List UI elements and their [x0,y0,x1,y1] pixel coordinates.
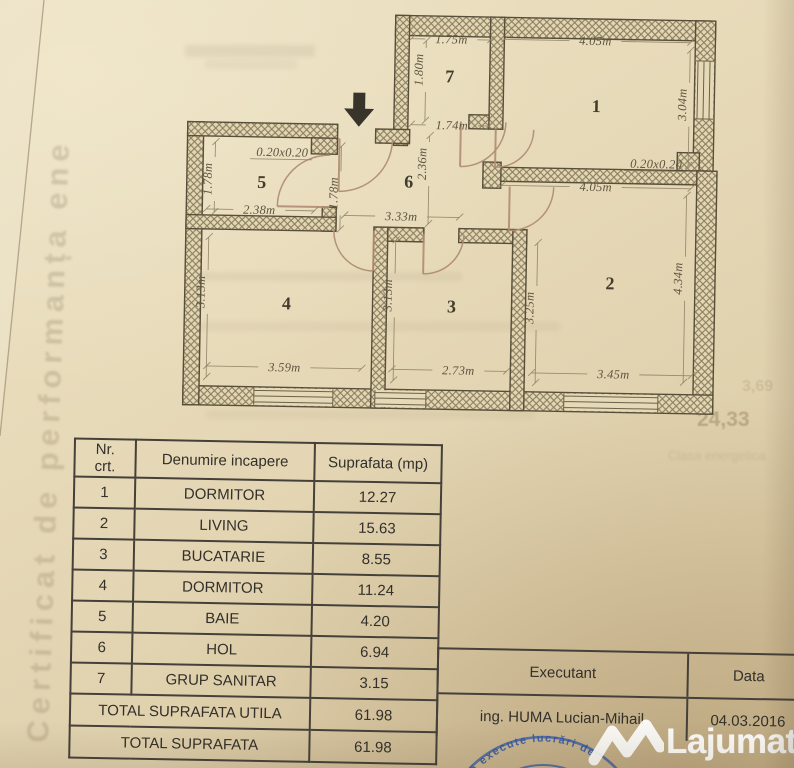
dimension-label: 0.20x0.20 [630,157,683,172]
room-number: 5 [257,172,266,192]
room-number: 3 [447,296,456,316]
dimension-label: 0.20x0.20 [256,145,309,160]
cell-area: 15.63 [313,512,441,545]
dimension-label: 3.59m [267,360,301,375]
dimension-label: 4.34m [671,262,686,295]
cell-nr: 3 [73,539,135,571]
room-number: 2 [605,273,614,293]
dimension-label: 3.45m [596,367,630,382]
dimension-label: 4.05m [579,34,612,49]
cell-name: GRUP SANITAR [131,664,311,698]
header-suprafata: Suprafata (mp) [314,443,442,483]
dimension-label: 2.73m [442,363,475,378]
room-number: 7 [445,66,454,86]
cell-area: 8.55 [313,543,441,576]
header-denumire: Denumire incapere [135,440,315,481]
dimension-label: 4.05m [579,180,612,195]
table-total-row: TOTAL SUPRAFATA 61.98 [69,725,437,764]
cell-name: HOL [132,633,312,667]
dimension-label: 3.04m [675,88,690,122]
cell-name: DORMITOR [133,571,313,605]
watermark: Lajumate.ro [586,718,794,766]
cell-name: LIVING [134,509,314,543]
cell-area: 3.15 [310,667,438,700]
dimension-label: 1.75m [435,32,468,47]
cell-nr: 2 [73,508,135,540]
header-nr-line2: crt. [79,458,130,476]
dimension-label: 1.74m [435,118,468,133]
cell-nr: 7 [70,663,132,695]
cell-name: DORMITOR [135,478,315,512]
lajumate-logo-icon [586,718,664,766]
dimension-label: 2.38m [243,203,276,218]
cell-nr: 1 [74,477,136,509]
cell-area: 6.94 [311,636,439,669]
executant-header: Executant [438,649,689,697]
total-label: TOTAL SUPRAFATA [69,725,310,761]
dimension-label: 1.78m [326,177,341,210]
cell-name: BAIE [132,602,312,636]
cell-name: BUCATARIE [134,540,314,574]
dimension-label: 1.78m [201,163,216,196]
data-header: Data [688,654,794,699]
scanned-floorplan-document: Certificat de performanța ene 3,69 24,33… [0,0,794,768]
header-nr-line1: Nr. [80,440,131,458]
cell-area: 4.20 [311,605,439,638]
cell-area: 12.27 [314,481,442,514]
total-utila-label: TOTAL SUPRAFATA UTILA [70,693,311,729]
watermark-brand-name: Lajumate [666,722,794,761]
executant-header-row: Executant Data [438,649,794,701]
cell-nr: 4 [72,570,134,602]
dimension-label: 1.80m [412,53,427,86]
room-number: 6 [404,172,413,192]
dimension-label: 2.36m [415,148,430,181]
room-number-layer: 1234567 [255,63,619,320]
floor-plan: 1.75m1.80m4.05m3.04m0.20x0.204.05m1.74m2… [0,0,794,483]
room-number: 1 [592,96,601,116]
watermark-brand: Lajumate.ro [666,722,794,762]
cell-nr: 6 [71,632,133,664]
entrance-arrow-icon [344,92,375,127]
dimension-label: 3.13m [193,275,208,309]
dimension-label: 3.33m [384,209,418,224]
room-areas-table: Nr. crt. Denumire incapere Suprafata (mp… [68,438,443,766]
total-value: 61.98 [309,730,437,764]
dimension-label: 3.13m [380,279,395,313]
header-nr: Nr. crt. [74,439,136,478]
cell-nr: 5 [71,601,133,633]
total-utila-value: 61.98 [310,698,438,732]
cell-area: 11.24 [312,574,440,607]
room-number: 4 [282,293,291,313]
dimension-label: 3.25m [522,292,537,326]
